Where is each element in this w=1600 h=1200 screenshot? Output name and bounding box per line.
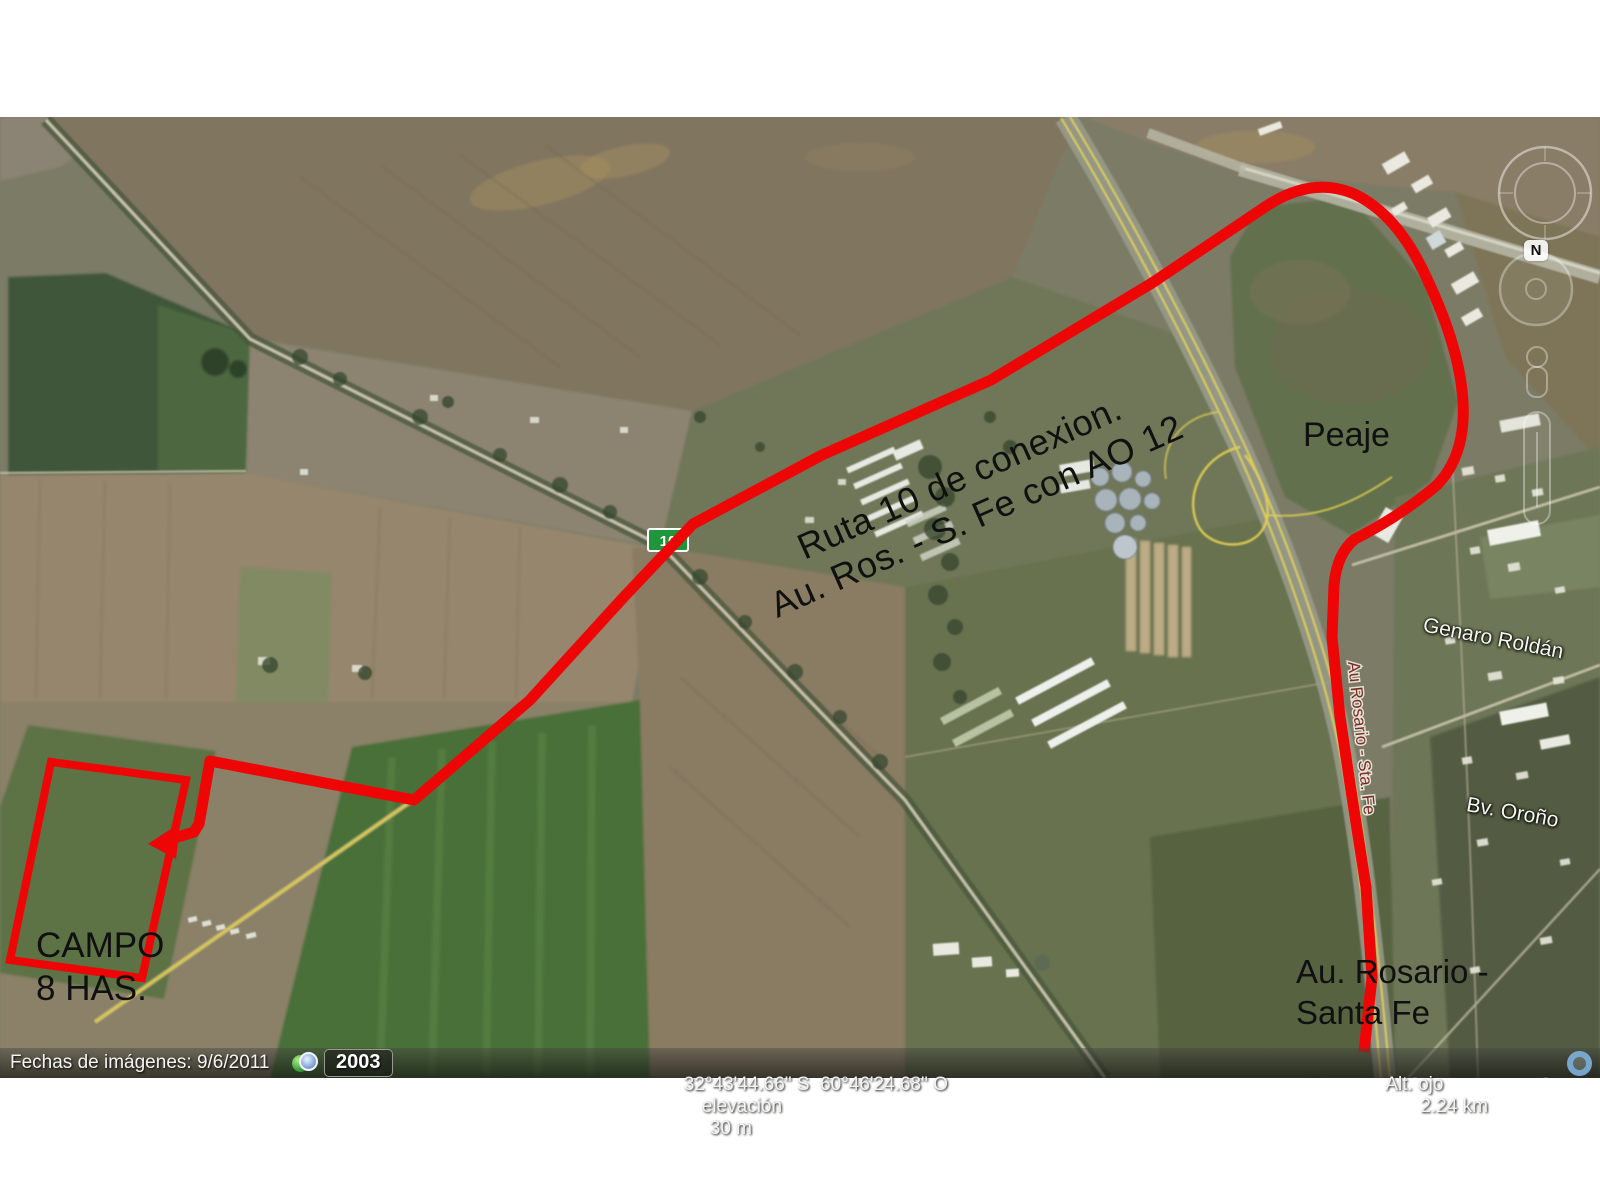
eye-alt-label: Alt. ojo <box>1385 1074 1443 1095</box>
status-bar-blue-icon <box>1567 1051 1592 1076</box>
satellite-map-viewport[interactable]: Au Rosario - Sta. Fe 10 <box>0 117 1600 1078</box>
highway-line2: Santa Fe <box>1296 993 1489 1034</box>
clock-icon-face <box>299 1052 318 1071</box>
history-year-badge[interactable]: 2003 <box>324 1049 393 1077</box>
historical-imagery-icon[interactable] <box>292 1051 318 1075</box>
imagery-date-label: Fechas de imágenes: 9/6/2011 <box>10 1052 270 1074</box>
toll-annotation: Peaje <box>1303 416 1390 455</box>
eye-altitude-readout: Alt. ojo 2.24 km <box>1355 1052 1488 1140</box>
compass-north-badge[interactable]: N <box>1524 240 1548 261</box>
highway-line1: Au. Rosario - <box>1296 952 1489 993</box>
look-joystick[interactable] <box>1500 253 1572 325</box>
campo-annotation: CAMPO 8 HAS. <box>36 925 164 1010</box>
campo-line1: CAMPO <box>36 925 164 968</box>
status-bar: Fechas de imágenes: 9/6/2011 2003 32°43'… <box>0 1048 1600 1078</box>
elevation-value: 30 m <box>710 1118 752 1139</box>
highway-annotation: Au. Rosario - Santa Fe <box>1296 952 1489 1034</box>
elevation-label: elevación <box>702 1096 782 1117</box>
lat-lon-value: 32°43'44.66" S 60°46'24.68" O <box>684 1074 948 1095</box>
campo-line2: 8 HAS. <box>36 968 164 1011</box>
coordinates-readout: 32°43'44.66" S 60°46'24.68" O elevación … <box>652 1052 948 1162</box>
eye-alt-value: 2.24 km <box>1420 1096 1488 1117</box>
zoom-slider[interactable] <box>1524 412 1550 524</box>
google-earth-window: Au Rosario - Sta. Fe 10 <box>0 0 1600 1200</box>
